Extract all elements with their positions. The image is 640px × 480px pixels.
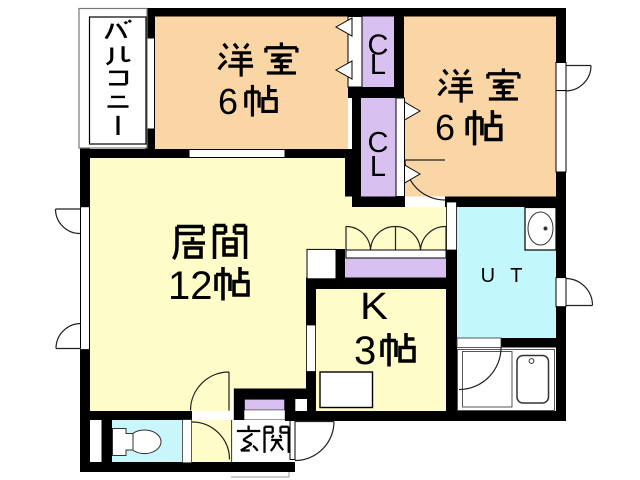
svg-text:U T: U T [481, 265, 528, 287]
svg-text:12: 12 [168, 264, 213, 308]
svg-text:3: 3 [354, 329, 376, 373]
svg-text:6: 6 [218, 81, 238, 122]
svg-text:L: L [370, 151, 386, 183]
svg-text:K: K [360, 286, 388, 328]
svg-text:L: L [370, 49, 386, 81]
svg-text:6: 6 [435, 107, 455, 148]
